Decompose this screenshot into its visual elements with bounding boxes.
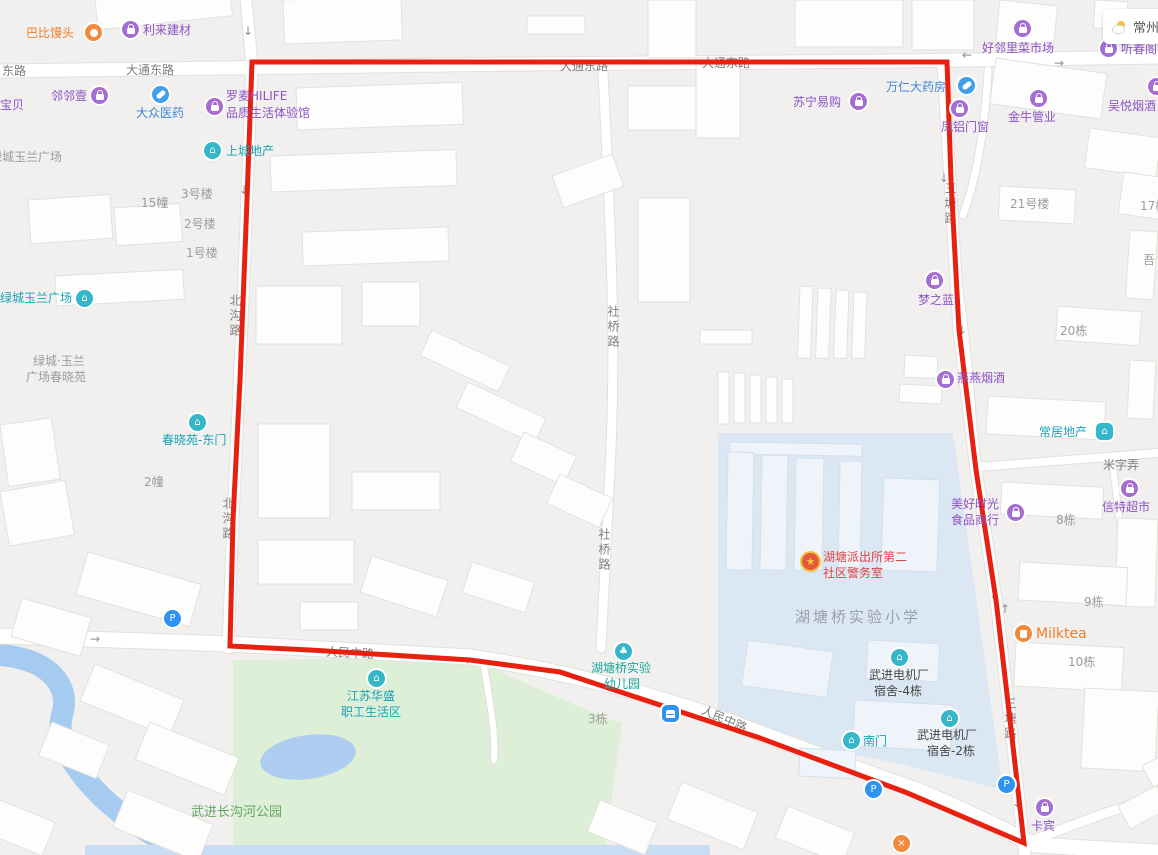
- shop-icon[interactable]: [122, 21, 139, 38]
- area-label-lvcheng-plaza: 绿城玉兰广场: [0, 150, 62, 165]
- weather-widget[interactable]: 常州: [1103, 9, 1158, 44]
- bldg-label-17d: 17栋: [1140, 199, 1158, 214]
- poi-police-label-1[interactable]: 湖塘派出所第二: [823, 550, 907, 565]
- bag-glyph: [956, 107, 964, 113]
- poi-south-gate-label[interactable]: 南门: [863, 734, 887, 749]
- poi-luomai-label-1[interactable]: 罗麦HILIFE: [226, 89, 287, 104]
- road-label-sheqiao-1: 社桥路: [605, 305, 620, 350]
- x-glyph: ×: [897, 839, 905, 849]
- food-closed-icon[interactable]: ×: [893, 835, 910, 852]
- map-canvas[interactable]: 东路 大通东路 大通东路 大通东路 北沟路 北沟路 社桥路 社桥路 三塘路 三塘…: [0, 0, 1158, 855]
- bag-glyph: [931, 279, 939, 285]
- poi-kabin-label[interactable]: 卡宾: [1031, 819, 1055, 834]
- shop-icon[interactable]: [850, 93, 867, 110]
- poi-police-label-2[interactable]: 社区警务室: [823, 566, 883, 581]
- poi-suning-label[interactable]: 苏宁易购: [793, 95, 841, 110]
- bag-glyph: [211, 105, 219, 111]
- bag-glyph: [127, 28, 135, 34]
- poi-dazhong-label[interactable]: 大众医药: [136, 106, 184, 121]
- bldg-label-1h: 1号楼: [186, 246, 218, 261]
- poi-dorm2-label-1[interactable]: 武进电机厂: [917, 728, 977, 743]
- road-label-sheqiao-2: 社桥路: [596, 528, 611, 573]
- poi-linlinyi-label[interactable]: 邻邻壹: [51, 89, 87, 104]
- tree-glyph: ♣: [619, 647, 628, 657]
- bag-glyph: [1041, 806, 1049, 812]
- partly-cloudy-icon: [1112, 21, 1126, 32]
- poi-shangcheng-label[interactable]: 上城地产: [226, 144, 274, 159]
- realty-icon[interactable]: ⌂: [204, 142, 221, 159]
- bldg-label-2z: 2幢: [144, 475, 164, 490]
- poi-kindergarten-label-1[interactable]: 湖塘桥实验: [591, 661, 651, 676]
- oneway-arrow: ↓: [957, 323, 967, 337]
- area-label-chunxiao-2: 广场春晓苑: [26, 370, 86, 385]
- shop-icon[interactable]: [206, 98, 223, 115]
- oneway-arrow: ↓: [239, 183, 249, 197]
- bldg-label-8d: 8栋: [1056, 513, 1076, 528]
- parking-icon[interactable]: P: [865, 781, 882, 798]
- bag-glyph: [855, 100, 863, 106]
- poi-baobei-label[interactable]: 宝贝: [0, 98, 24, 113]
- oneway-arrow: →: [90, 632, 100, 646]
- road-label-renmin-1: 人民中路: [326, 645, 375, 662]
- shop-icon[interactable]: [1007, 504, 1024, 521]
- poi-meihao-label-1[interactable]: 美好时光: [951, 497, 999, 512]
- road-label-beigou-1: 北沟路: [227, 294, 242, 339]
- pill-glyph: [155, 89, 166, 99]
- house-glyph: ⌂: [946, 714, 952, 724]
- poi-dorm2-label-2[interactable]: 宿舍-2栋: [927, 744, 975, 759]
- poi-huasheng-label-1[interactable]: 江苏华盛: [347, 689, 395, 704]
- bldg-label-20d: 20栋: [1060, 324, 1087, 339]
- shop-icon[interactable]: [91, 87, 108, 104]
- shop-icon[interactable]: [1014, 20, 1031, 37]
- area-label-park: 武进长沟河公园: [191, 805, 282, 821]
- p-glyph: P: [1003, 780, 1009, 790]
- road-label-santang-2: 三塘路: [1002, 697, 1017, 742]
- shop-icon[interactable]: [1148, 78, 1158, 95]
- p-glyph: P: [169, 614, 175, 624]
- road-label-datong-2: 大通东路: [560, 59, 608, 74]
- road-label-datong-3: 大通东路: [702, 56, 750, 71]
- poi-haolinli-label[interactable]: 好邻里菜市场: [982, 41, 1054, 56]
- poi-tingchun-label[interactable]: 听春阁: [1121, 42, 1157, 57]
- poi-wanren-label[interactable]: 万仁大药房: [886, 80, 946, 95]
- bldg-label-3h: 3号楼: [181, 187, 213, 202]
- poi-dorm4-label-2[interactable]: 宿舍-4栋: [874, 684, 922, 699]
- poi-mengzhilan-label[interactable]: 梦之蓝: [918, 293, 954, 308]
- star-glyph: ★: [806, 556, 816, 567]
- bag-glyph: [1153, 85, 1158, 91]
- pill-glyph: [961, 80, 972, 90]
- poi-changju-label[interactable]: 常居地产: [1039, 425, 1087, 440]
- poi-yanyan-label[interactable]: 燕燕烟酒: [957, 371, 1005, 386]
- oneway-arrow: ←: [962, 48, 972, 62]
- oneway-arrow: ↓: [989, 588, 999, 602]
- bag-glyph: [1019, 27, 1027, 33]
- p-glyph: P: [870, 785, 876, 795]
- cup-glyph: [1020, 630, 1027, 638]
- poi-lilai-label[interactable]: 利来建材: [143, 23, 191, 38]
- dorm-icon[interactable]: ⌂: [941, 710, 958, 727]
- kindergarten-icon[interactable]: ♣: [615, 643, 632, 660]
- bag-glyph: [1126, 487, 1134, 493]
- gate-icon[interactable]: ⌂: [843, 732, 860, 749]
- shop-icon[interactable]: [926, 272, 943, 289]
- area-label-chunxiao-1: 绿城·玉兰: [33, 354, 85, 369]
- poi-wuyue-label[interactable]: 吴悦烟酒: [1108, 99, 1156, 114]
- poi-xinte-label[interactable]: 信特超市: [1102, 500, 1150, 515]
- realty-icon[interactable]: ⌂: [1096, 423, 1113, 440]
- bldg-label-3d: 3栋: [588, 712, 608, 727]
- oneway-arrow: ↓: [1012, 796, 1022, 810]
- poi-fenglv-label[interactable]: 凤铝门窗: [941, 120, 989, 135]
- police-badge-icon[interactable]: ★: [802, 553, 819, 570]
- road-label-donglu: 东路: [2, 64, 26, 79]
- poi-chunxiao-gate-label[interactable]: 春晓苑-东门: [162, 433, 226, 448]
- parking-icon[interactable]: P: [164, 610, 181, 627]
- poi-jinniu-label[interactable]: 金牛管业: [1008, 110, 1056, 125]
- oneway-arrow: ↓: [243, 24, 253, 38]
- shop-icon[interactable]: [1030, 90, 1047, 107]
- shop-icon[interactable]: [1036, 799, 1053, 816]
- poi-babimantou-label[interactable]: 巴比馒头: [26, 26, 74, 41]
- bag-glyph: [1035, 97, 1043, 103]
- bldg-label-wu: 吾: [1143, 253, 1155, 268]
- bag-glyph: [1012, 511, 1020, 517]
- road-label-santang-1: 三塘路: [942, 182, 957, 227]
- pharmacy-icon[interactable]: [958, 77, 975, 94]
- pharmacy-icon[interactable]: [152, 86, 169, 103]
- shop-icon[interactable]: [937, 371, 954, 388]
- oneway-arrow: ↓: [939, 171, 949, 185]
- shop-icon[interactable]: [1121, 480, 1138, 497]
- bag-glyph: [1105, 47, 1113, 53]
- parking-icon[interactable]: P: [998, 776, 1015, 793]
- poi-kindergarten-label-2[interactable]: 幼儿园: [604, 677, 640, 692]
- oneway-arrow: →: [460, 654, 470, 668]
- bldg-label-9d: 9栋: [1084, 595, 1104, 610]
- house-glyph: ⌂: [194, 418, 200, 428]
- bldg-label-21h: 21号楼: [1010, 197, 1049, 212]
- shop-icon[interactable]: [951, 100, 968, 117]
- road-label-beigou-2: 北沟路: [220, 497, 235, 542]
- poi-meihao-label-2[interactable]: 食品商行: [951, 513, 999, 528]
- poi-huasheng-label-2[interactable]: 职工生活区: [341, 705, 401, 720]
- bun-icon[interactable]: [85, 24, 102, 41]
- mall-icon[interactable]: ⌂: [76, 290, 93, 307]
- area-label-school: 湖塘桥实验小学: [795, 608, 921, 627]
- bag-glyph: [96, 94, 104, 100]
- bag-glyph: [942, 378, 950, 384]
- oneway-arrow: →: [1054, 56, 1064, 70]
- poi-dorm4-label-1[interactable]: 武进电机厂: [869, 668, 929, 683]
- dorm-icon[interactable]: ⌂: [891, 649, 908, 666]
- bldg-label-10d: 10栋: [1068, 655, 1095, 670]
- house-glyph: ⌂: [1101, 427, 1107, 437]
- milktea-icon[interactable]: [1015, 625, 1032, 642]
- house-glyph: ⌂: [373, 674, 379, 684]
- poi-luomai-label-2[interactable]: 品质生活体验馆: [226, 106, 310, 121]
- house-glyph: ⌂: [209, 146, 215, 156]
- bldg-label-2h: 2号楼: [184, 217, 216, 232]
- road-label-mizilong: 米字弄: [1103, 458, 1139, 473]
- bun-glyph: [90, 29, 98, 37]
- house-glyph: ⌂: [81, 294, 87, 304]
- bldg-label-15: 15幢: [141, 196, 168, 211]
- bus-stop-icon[interactable]: [662, 705, 679, 722]
- house-glyph: ⌂: [896, 653, 902, 663]
- gate-icon[interactable]: ⌂: [189, 414, 206, 431]
- bus-glyph: [666, 710, 675, 718]
- poi-milktea-label[interactable]: Milktea: [1036, 626, 1087, 644]
- poi-lvcheng-label[interactable]: 绿城玉兰广场: [0, 291, 72, 306]
- house-glyph: ⌂: [848, 736, 854, 746]
- residence-icon[interactable]: ⌂: [368, 670, 385, 687]
- oneway-arrow: ↑: [1000, 602, 1010, 616]
- weather-city-label: 常州: [1133, 17, 1158, 36]
- road-label-datong-1: 大通东路: [126, 63, 174, 78]
